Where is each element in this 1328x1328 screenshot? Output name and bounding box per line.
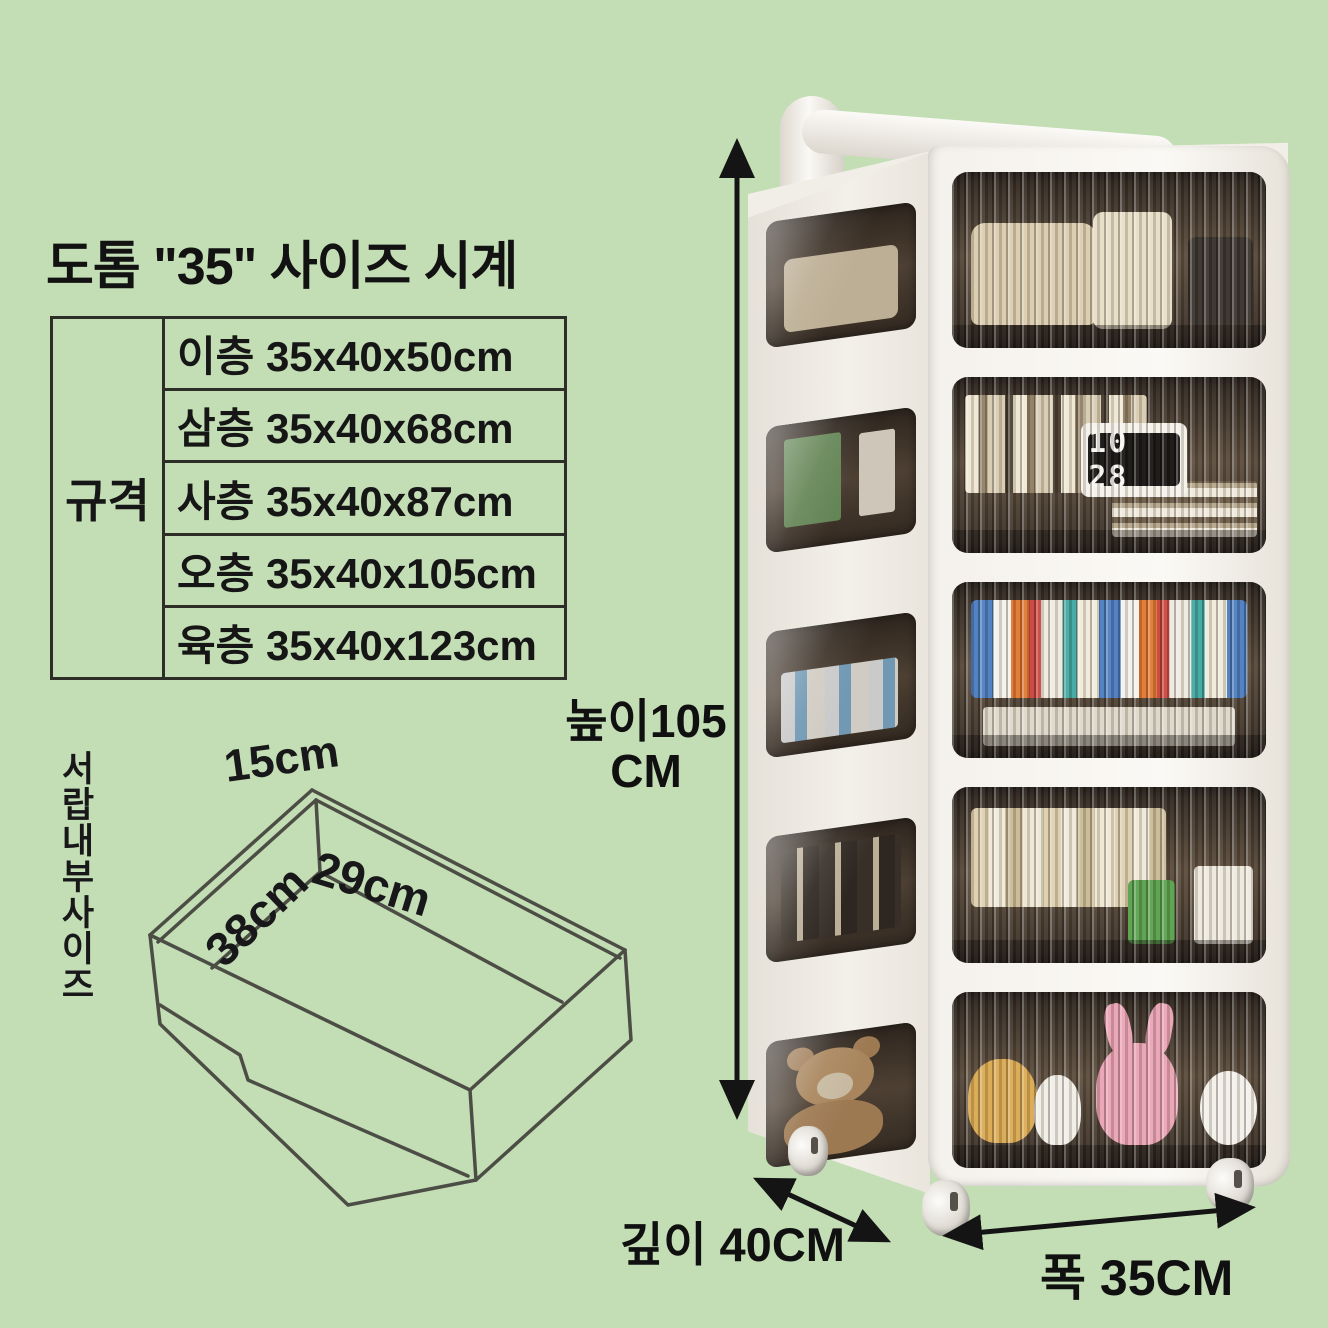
front-door-tier1-bags: [952, 172, 1266, 348]
page-title: 도톰 "35" 사이즈 시계: [46, 224, 517, 299]
fluted-glass-overlay: [952, 992, 1266, 1168]
caster-wheel: [1206, 1158, 1254, 1212]
caster-wheel: [922, 1180, 970, 1236]
drawer-side-caption: 서랍내부사이즈: [56, 752, 100, 1004]
front-door-tier3-toiletries: [952, 582, 1266, 758]
caster-wheel: [788, 1126, 828, 1176]
width-arrow: [952, 1208, 1246, 1235]
drawer-width-dimension: 29cm: [307, 840, 438, 928]
front-door-tier2-books: 10 28: [952, 377, 1266, 553]
side-window-tier3: [766, 611, 916, 758]
width-dimension-label: 폭 35CM: [1040, 1238, 1233, 1310]
drawer-depth-dimension: 38cm: [194, 854, 319, 977]
front-door-tier4-tubes: [952, 787, 1266, 963]
drawer-top-dimension: 15cm: [221, 725, 342, 793]
table-row: 사층 35x40x87cm: [165, 463, 564, 535]
side-window-tier2: [766, 406, 916, 553]
table-row: 삼층 35x40x68cm: [165, 391, 564, 463]
depth-dimension-label: 깊이 40CM: [620, 1206, 845, 1275]
height-dimension-label: 높이105 CM: [556, 696, 736, 796]
fluted-glass-overlay: [952, 172, 1266, 348]
table-row: 오층 35x40x105cm: [165, 536, 564, 608]
spec-table-header: 규격: [53, 319, 165, 677]
spec-table-rows: 이층 35x40x50cm 삼층 35x40x68cm 사층 35x40x87c…: [165, 319, 564, 677]
fluted-glass-overlay: [952, 787, 1266, 963]
side-window-tier4: [766, 816, 916, 963]
table-row: 육층 35x40x123cm: [165, 608, 564, 677]
product-infographic: 도톰 "35" 사이즈 시계 규격 이층 35x40x50cm 삼층 35x40…: [0, 0, 1328, 1328]
side-window-tier1: [766, 201, 916, 348]
fluted-glass-overlay: [952, 377, 1266, 553]
front-door-tier5-plush: [952, 992, 1266, 1168]
height-value: 높이105: [556, 696, 736, 746]
height-unit: CM: [556, 746, 736, 796]
spec-table: 규격 이층 35x40x50cm 삼층 35x40x68cm 사층 35x40x…: [50, 316, 567, 680]
fluted-glass-overlay: [952, 582, 1266, 758]
table-row: 이층 35x40x50cm: [165, 319, 564, 391]
drawer-line-drawing: [150, 790, 631, 1205]
